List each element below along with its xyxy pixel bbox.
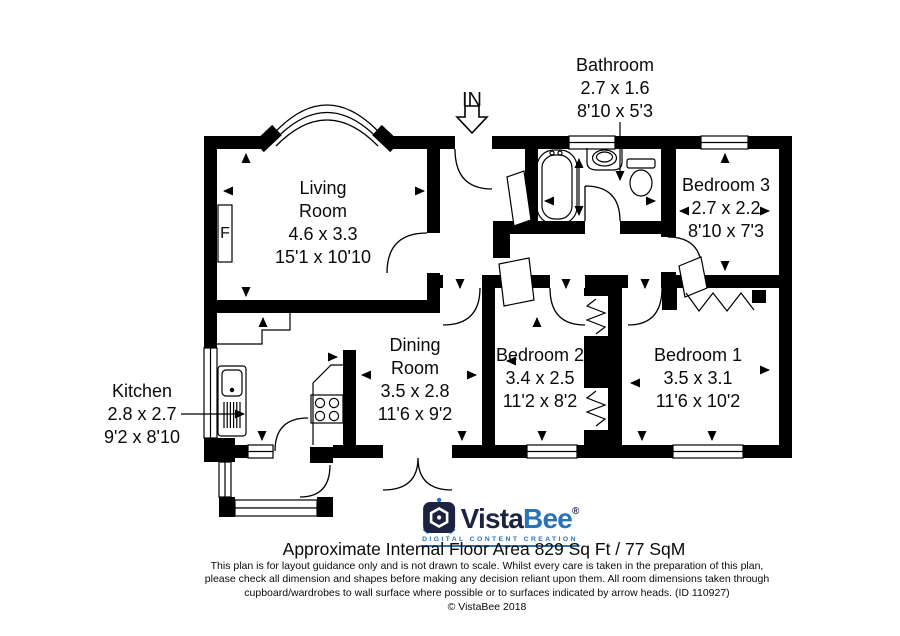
bedroom2-door-arc (550, 288, 585, 325)
floor-plan-page: Living Room 4.6 x 3.3 15'1 x 10'10 Bathr… (0, 0, 900, 636)
bedroom1-wardrobe-zigzag (686, 293, 754, 311)
kitchen-back-door-arc (275, 418, 308, 451)
entrance-door-arc (455, 149, 492, 189)
toilet-cistern (627, 159, 655, 168)
bathtub (537, 150, 577, 224)
porch-door-arc (300, 465, 330, 497)
dining-room-label: Dining Room 3.5 x 2.8 11'6 x 9'2 (378, 334, 453, 426)
dining-door-arc (443, 288, 480, 325)
kitchen-fixtures (217, 313, 343, 445)
kitchen-counter (217, 313, 290, 344)
living-room-label: Living Room 4.6 x 3.3 15'1 x 10'10 (275, 177, 371, 269)
bedroom2-label: Bedroom 2 3.4 x 2.5 11'2 x 8'2 (496, 344, 584, 413)
cupboard-zigzag-bottom (587, 391, 605, 426)
copyright-text: © VistaBee 2018 (448, 601, 527, 613)
kitchen-drainer (224, 402, 240, 428)
bathroom-door-arc (585, 186, 620, 221)
bedroom3-label: Bedroom 3 2.7 x 2.2 8'10 x 7'3 (682, 174, 770, 243)
bathroom-label: Bathroom 2.7 x 1.6 8'10 x 5'3 (576, 54, 654, 123)
french-doors-arcs (383, 458, 452, 490)
bedroom1-wardrobe-door (679, 257, 707, 297)
floor-area-text: Approximate Internal Floor Area 829 Sq F… (283, 539, 686, 560)
bedroom1-door-arc (628, 288, 662, 325)
kitchen-label: Kitchen 2.8 x 2.7 9'2 x 8'10 (104, 380, 180, 449)
toilet-bowl (630, 170, 652, 196)
entrance-label: IN (462, 89, 482, 111)
bedroom1-label: Bedroom 1 3.5 x 3.1 11'6 x 10'2 (654, 344, 742, 413)
fireplace-label: F (220, 225, 230, 243)
cupboard-zigzag-top (587, 299, 605, 334)
disclaimer-text: This plan is for layout guidance only an… (205, 560, 769, 600)
vistabee-wordmark: VistaBee® (461, 495, 580, 536)
porch-steps (235, 500, 317, 516)
bedroom2-closet-door (499, 258, 534, 306)
vistabee-logo-icon (421, 497, 458, 535)
bay-window (259, 105, 395, 147)
bathroom-fixtures (537, 148, 655, 224)
living-room-door-arc (387, 233, 427, 273)
